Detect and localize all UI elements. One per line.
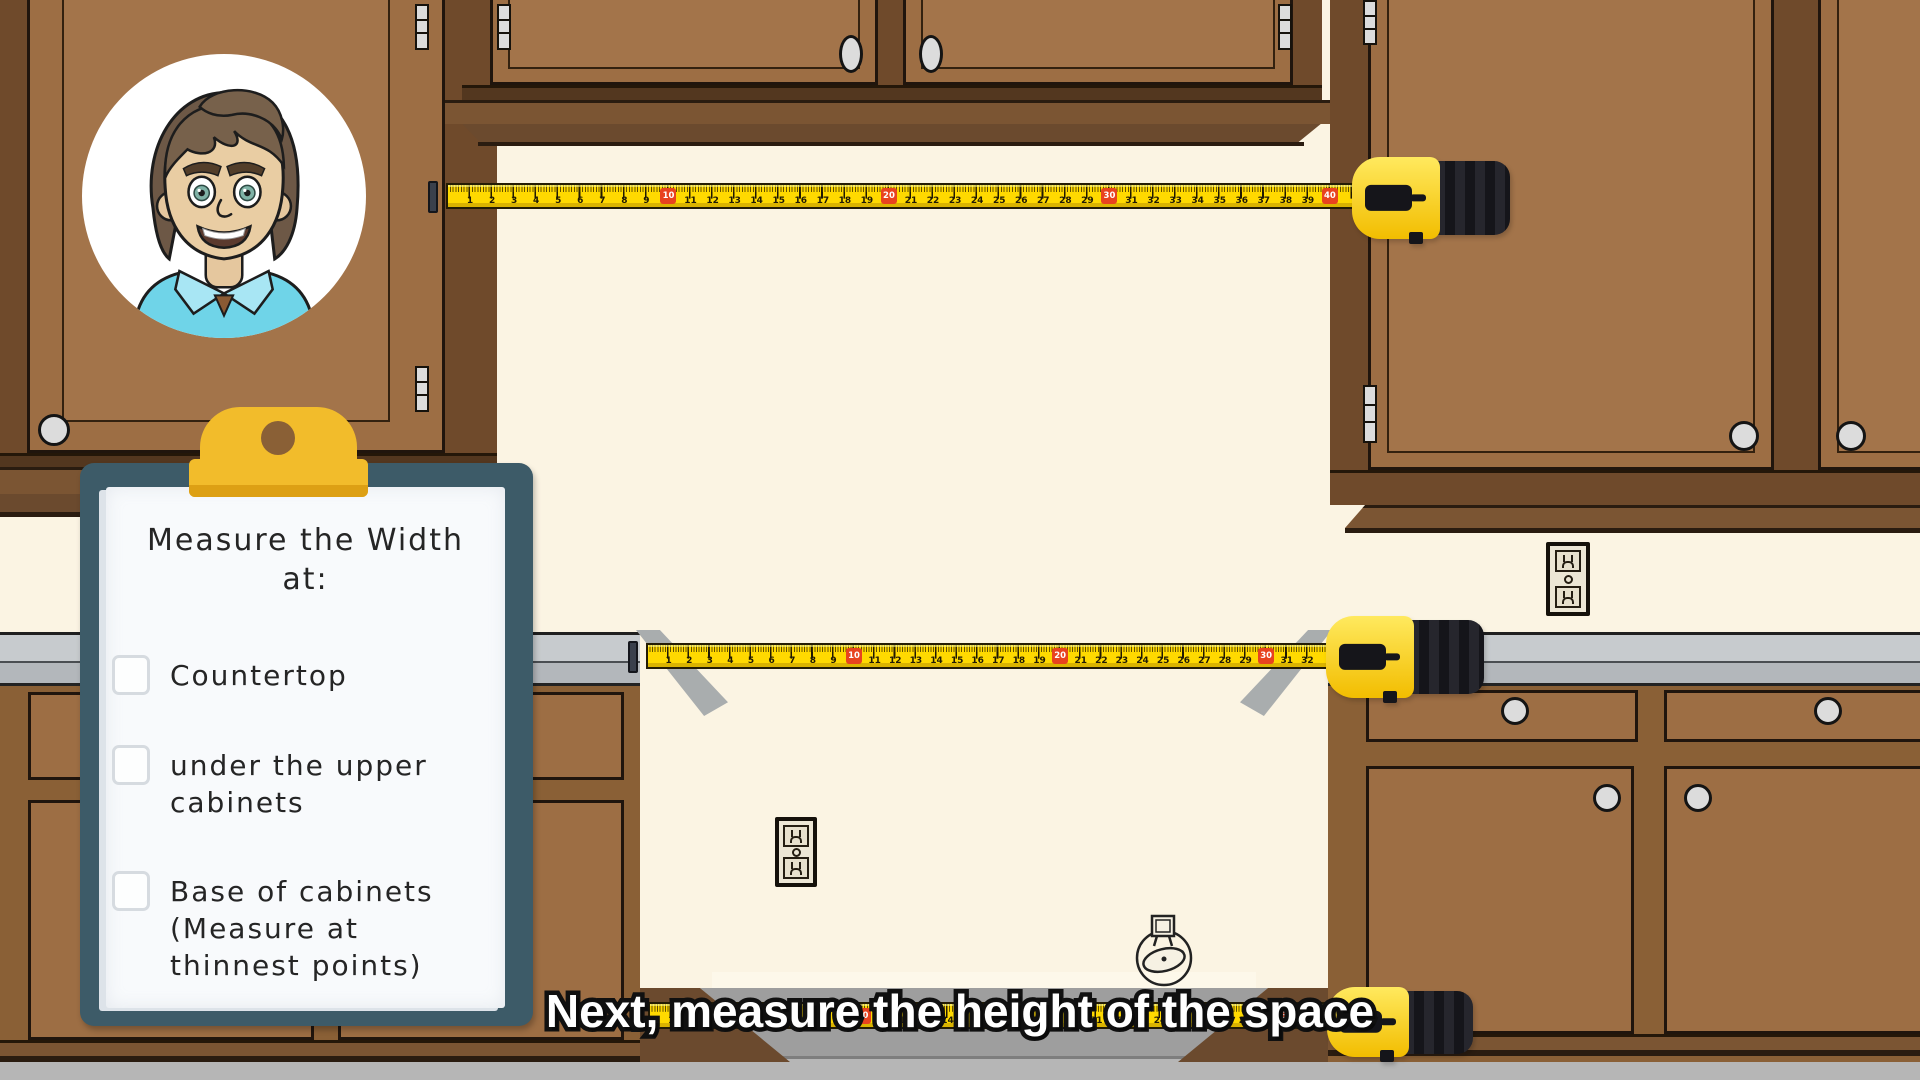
power-outlet-upper [1546, 542, 1590, 616]
tape-number: 14 [926, 656, 946, 666]
tape-number: 16 [968, 656, 988, 666]
tape-case [1352, 157, 1510, 239]
cabinet-door [903, 0, 1293, 85]
tape-number: 28 [1215, 656, 1235, 666]
cabinet-door [1818, 0, 1920, 470]
upper-cabinet-center [462, 0, 1322, 100]
outlet-screw [1564, 575, 1573, 584]
tape-number: 5 [548, 196, 568, 206]
tape-number: 21 [1071, 656, 1091, 666]
tape-belt-clip [1380, 1050, 1394, 1062]
check-row: Base of cabinets (Measure at thinnest po… [112, 871, 491, 984]
tape-number: 13 [725, 196, 745, 206]
tape-number: 19 [1030, 656, 1050, 666]
door-knob [1593, 784, 1621, 812]
tape-number: 3 [504, 196, 524, 206]
tape-number: 39 [1298, 196, 1318, 206]
outlet-receptacle [1555, 586, 1581, 608]
tape-number: 16 [791, 196, 811, 206]
drawer-knob [1501, 697, 1529, 725]
crown-molding [445, 100, 1340, 124]
check-row: Countertop [112, 655, 491, 695]
cabinet-door [490, 0, 878, 85]
tape-red-marker: 30 [1258, 648, 1274, 664]
checkbox [112, 745, 150, 785]
cabinet-bottom-bar [462, 85, 1322, 100]
tape-number: 5 [741, 656, 761, 666]
checklist-title-line2: at: [106, 560, 505, 599]
tape-number: 34 [1188, 196, 1208, 206]
check-label: under the upper cabinets [170, 747, 428, 821]
hinge-icon [1363, 0, 1377, 45]
hinge-icon [497, 4, 511, 50]
tape-number: 11 [865, 656, 885, 666]
door-knob [1836, 421, 1866, 451]
tape-red-marker: 20 [1052, 648, 1068, 664]
tape-number: 29 [1236, 656, 1256, 666]
outlet-receptacle [783, 825, 809, 847]
caption-subtitle: Next, measure the height of the space [0, 984, 1920, 1038]
door-knob [839, 35, 863, 73]
clipboard-clip-edge [189, 485, 368, 497]
tape-red-marker: 10 [660, 188, 676, 204]
tape-number: 27 [1033, 196, 1053, 206]
hinge-icon [415, 366, 429, 412]
tape-number: 36 [1232, 196, 1252, 206]
tape-belt-clip [1383, 691, 1397, 703]
tape-hook [628, 641, 638, 673]
clipboard: Measure the Width at: Countertopunder th… [80, 463, 533, 1026]
tape-number: 12 [703, 196, 723, 206]
check-row: under the upper cabinets [112, 745, 491, 821]
tape-red-marker: 10 [846, 648, 862, 664]
tape-number: 1 [460, 196, 480, 206]
toe-shadow [0, 1056, 640, 1062]
presenter-avatar-illustration [82, 54, 366, 338]
tape-number: 25 [1153, 656, 1173, 666]
tape-measure-doodle-icon [1126, 910, 1200, 988]
tape-red-marker: 20 [881, 188, 897, 204]
door-knob [38, 414, 70, 446]
tape-number: 6 [762, 656, 782, 666]
tape-number: 23 [945, 196, 965, 206]
door-panel [921, 0, 1275, 69]
tape-number: 6 [570, 196, 590, 206]
checklist-title: Measure the Width at: [106, 521, 505, 599]
outlet-screw [792, 848, 801, 857]
tape-red-marker: 30 [1101, 188, 1117, 204]
hinge-icon [1363, 385, 1377, 443]
crown-shadow [478, 142, 1304, 146]
tape-number: 31 [1122, 196, 1142, 206]
tape-number: 25 [989, 196, 1009, 206]
tape-number: 8 [803, 656, 823, 666]
door-panel [1837, 0, 1920, 453]
tape-number: 2 [482, 196, 502, 206]
crown-shadow [1345, 528, 1920, 533]
tape-number: 21 [901, 196, 921, 206]
tape-number: 22 [1091, 656, 1111, 666]
tape-hook [428, 181, 438, 213]
tape-number: 35 [1210, 196, 1230, 206]
tape-case [1326, 616, 1484, 698]
tape-number: 24 [967, 196, 987, 206]
kitchen-measuring-scene: 1234567891011121314151617181920212223242… [0, 0, 1920, 1080]
tape-number: 26 [1174, 656, 1194, 666]
tape-number: 37 [1254, 196, 1274, 206]
tape-number: 32 [1297, 656, 1317, 666]
tape-belt-clip [1409, 232, 1423, 244]
upper-cabinet-right [1330, 0, 1920, 505]
door-knob [1729, 421, 1759, 451]
door-knob [1684, 784, 1712, 812]
door-panel [508, 0, 860, 69]
power-outlet-lower [775, 817, 817, 887]
tape-number: 28 [1055, 196, 1075, 206]
tape-number: 33 [1166, 196, 1186, 206]
tape-number: 9 [823, 656, 843, 666]
tape-number: 1 [659, 656, 679, 666]
tape-number: 9 [636, 196, 656, 206]
check-label: Countertop [170, 657, 348, 694]
tape-number: 29 [1077, 196, 1097, 206]
tape-number: 22 [923, 196, 943, 206]
hinge-icon [415, 4, 429, 50]
tape-number: 2 [679, 656, 699, 666]
tape-number: 32 [1144, 196, 1164, 206]
checklist-title-line1: Measure the Width [106, 521, 505, 560]
tape-number: 7 [592, 196, 612, 206]
tape-number: 13 [906, 656, 926, 666]
tape-number: 3 [700, 656, 720, 666]
tape-number: 12 [885, 656, 905, 666]
tape-number: 14 [747, 196, 767, 206]
toe-kick [0, 1040, 640, 1056]
cabinet-drawer [1664, 690, 1920, 742]
checkbox [112, 655, 150, 695]
outlet-receptacle [783, 857, 809, 879]
tape-number: 31 [1277, 656, 1297, 666]
door-knob [919, 35, 943, 73]
clipboard-paper: Measure the Width at: Countertopunder th… [106, 487, 505, 1008]
tape-lock-icon [1365, 185, 1412, 211]
tape-number: 7 [782, 656, 802, 666]
tape-number: 15 [769, 196, 789, 206]
check-label: Base of cabinets (Measure at thinnest po… [170, 873, 434, 984]
tape-number: 4 [720, 656, 740, 666]
tape-number: 8 [614, 196, 634, 206]
cabinet-bottom-bar [1330, 470, 1920, 505]
tape-number: 38 [1276, 196, 1296, 206]
tape-number: 17 [813, 196, 833, 206]
checkbox [112, 871, 150, 911]
presenter-avatar [82, 54, 366, 338]
tape-number: 19 [857, 196, 877, 206]
tape-red-marker: 40 [1322, 188, 1338, 204]
tape-number: 18 [835, 196, 855, 206]
tape-number: 26 [1011, 196, 1031, 206]
outlet-receptacle [1555, 550, 1581, 572]
tape-number: 11 [681, 196, 701, 206]
tape-number: 15 [947, 656, 967, 666]
clipboard-clip-hole [261, 421, 295, 455]
tape-number: 23 [1112, 656, 1132, 666]
tape-number: 24 [1133, 656, 1153, 666]
tape-number: 27 [1194, 656, 1214, 666]
drawer-knob [1814, 697, 1842, 725]
tape-lock-icon [1339, 644, 1386, 670]
tape-blade: 1234567891011121314151617181920212223242… [646, 643, 1330, 669]
tape-number: 4 [526, 196, 546, 206]
tape-number: 18 [1009, 656, 1029, 666]
hinge-icon [1278, 4, 1292, 50]
crown-molding [1345, 505, 1920, 528]
tape-number: 17 [988, 656, 1008, 666]
tape-blade: 1234567891011121314151617181920212223242… [446, 183, 1354, 209]
crown-skirt [449, 124, 1334, 142]
checklist: Countertopunder the upper cabinetsBase o… [112, 655, 491, 984]
